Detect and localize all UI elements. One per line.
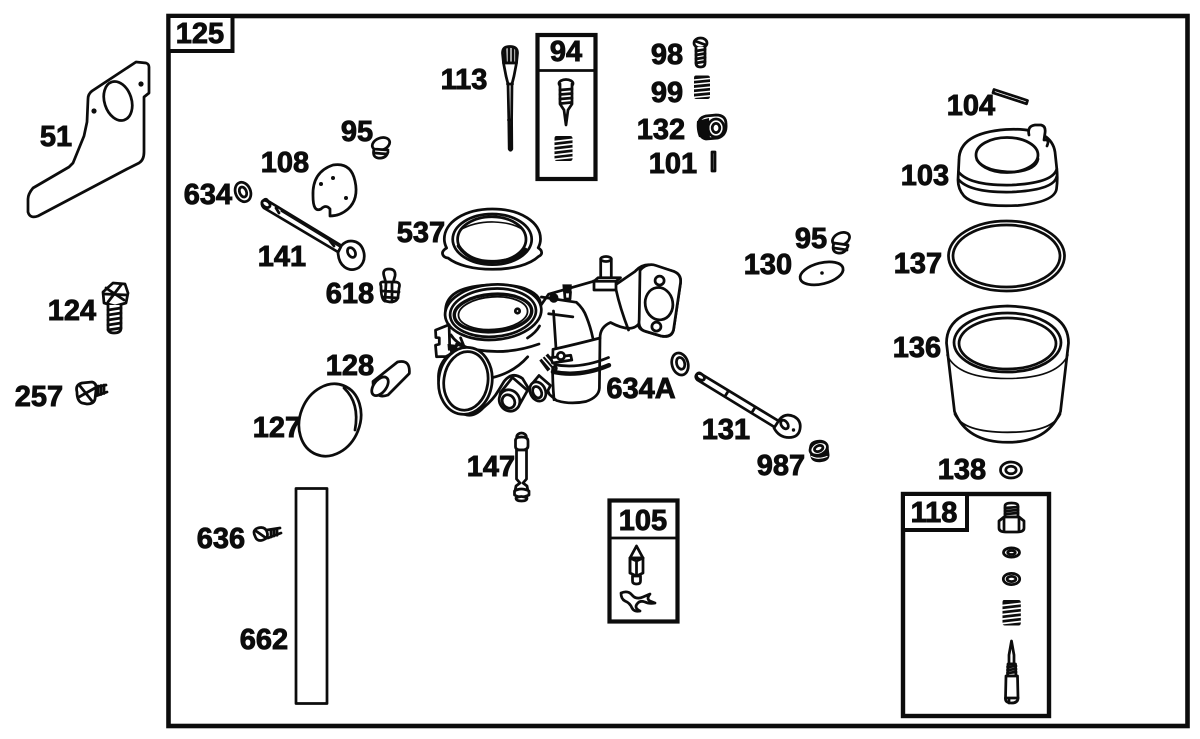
svg-text:257: 257 (15, 381, 63, 413)
svg-text:113: 113 (441, 64, 488, 96)
svg-text:147: 147 (467, 451, 515, 483)
svg-text:634: 634 (184, 179, 232, 211)
svg-text:618: 618 (326, 278, 374, 310)
svg-text:124: 124 (48, 295, 96, 327)
svg-text:138: 138 (938, 454, 986, 486)
svg-text:636: 636 (197, 523, 245, 555)
svg-text:137: 137 (894, 248, 942, 280)
svg-text:136: 136 (893, 332, 941, 364)
svg-text:662: 662 (240, 624, 288, 656)
svg-text:127: 127 (253, 412, 301, 444)
svg-text:103: 103 (901, 160, 949, 192)
svg-text:94: 94 (550, 36, 582, 68)
svg-text:105: 105 (619, 505, 667, 537)
svg-text:101: 101 (649, 148, 697, 180)
svg-text:537: 537 (397, 217, 445, 249)
svg-text:634A: 634A (606, 373, 675, 405)
svg-text:130: 130 (744, 249, 792, 281)
svg-text:118: 118 (911, 497, 958, 529)
svg-text:104: 104 (947, 90, 995, 122)
svg-text:128: 128 (326, 350, 374, 382)
svg-text:98: 98 (651, 39, 683, 71)
svg-text:99: 99 (651, 77, 683, 109)
svg-text:141: 141 (258, 241, 306, 273)
svg-text:131: 131 (702, 414, 750, 446)
svg-text:125: 125 (176, 18, 224, 50)
svg-text:95: 95 (795, 223, 827, 255)
svg-text:108: 108 (261, 147, 309, 179)
svg-text:987: 987 (757, 450, 805, 482)
svg-text:95: 95 (341, 116, 373, 148)
svg-text:51: 51 (40, 121, 72, 153)
svg-text:132: 132 (637, 114, 685, 146)
